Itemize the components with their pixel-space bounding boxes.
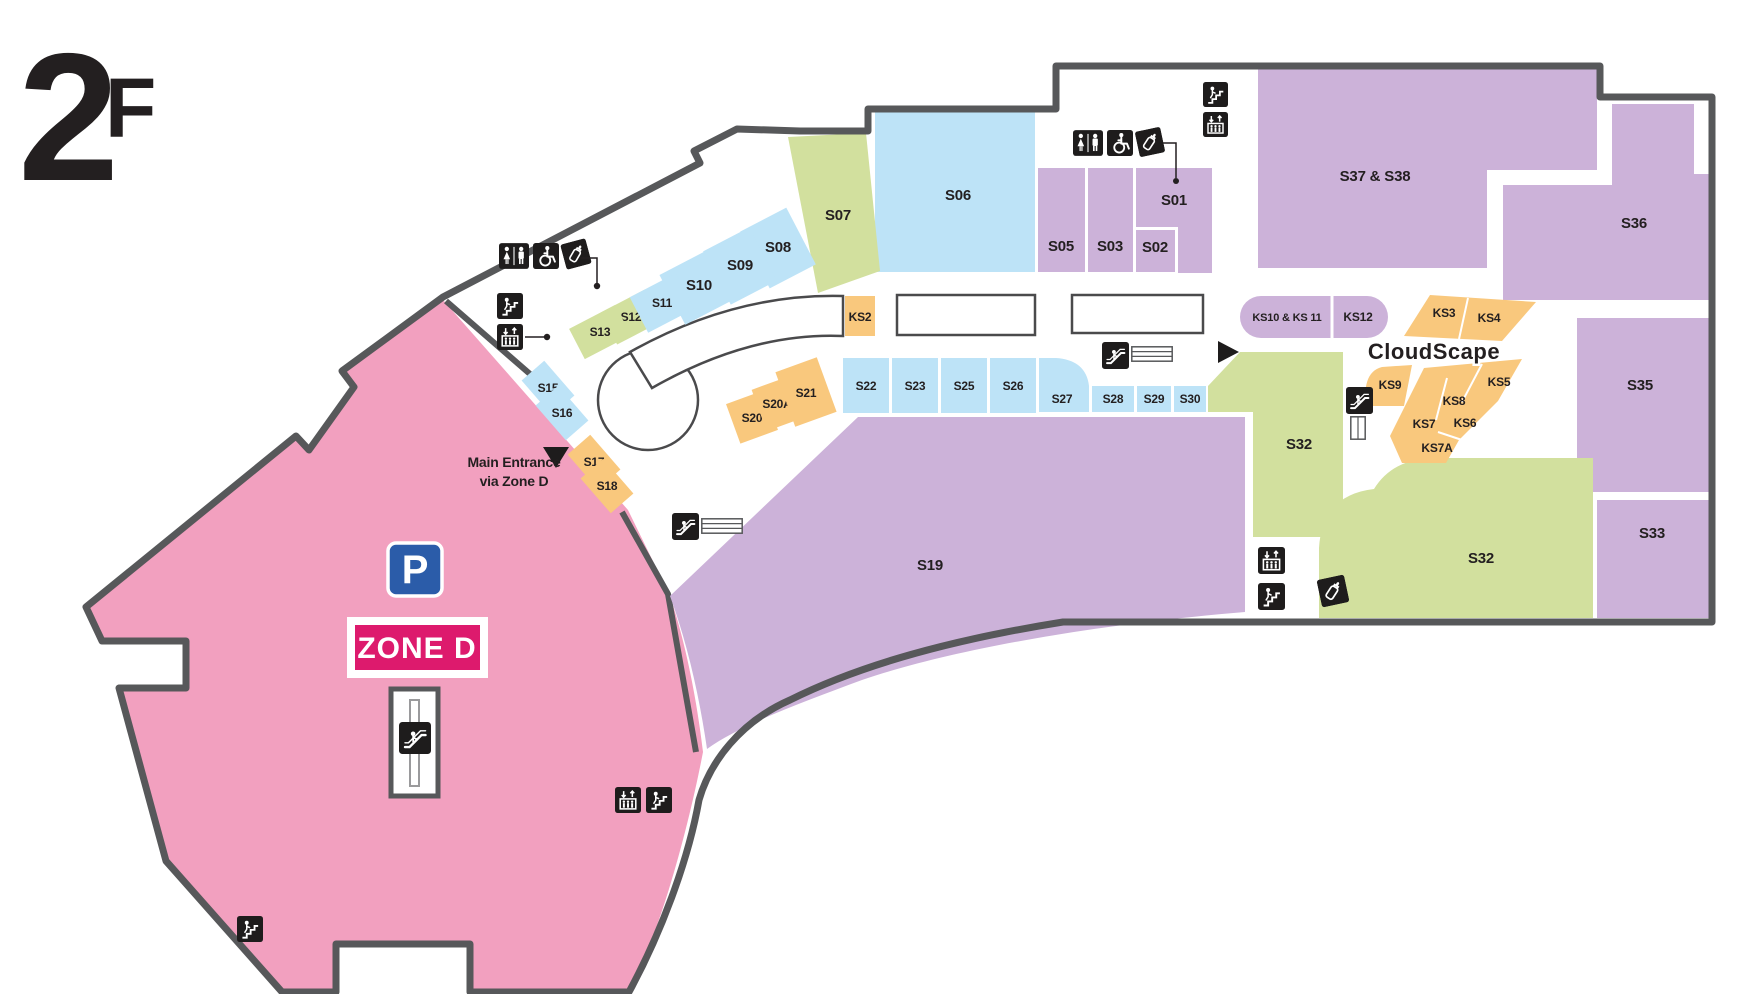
shop-label: S26	[1003, 379, 1024, 393]
elevator-icon	[615, 787, 641, 813]
stairs-icon	[497, 293, 523, 319]
shop-label: S35	[1627, 377, 1653, 394]
zone-d-label: ZONE D	[357, 632, 476, 665]
shop-label: S36	[1621, 215, 1647, 232]
shop-label: S03	[1097, 238, 1123, 255]
shop-label: S25	[954, 379, 975, 393]
shop-label: S02	[1142, 239, 1168, 256]
floorplan-page: S06 S05 S03 S01 S02 S37 & S38 S36 S35 S3…	[0, 0, 1764, 994]
location-dot	[544, 334, 550, 340]
zone-d-escalator-structure	[391, 689, 438, 796]
location-dot	[594, 283, 600, 289]
shop-label: S37 & S38	[1340, 168, 1411, 185]
shop-label: S22	[856, 379, 877, 393]
baby-care-icon	[1316, 574, 1349, 607]
parking-sign: P	[388, 543, 442, 596]
shop-S05: S05	[1038, 168, 1085, 272]
shop-label: S01	[1161, 192, 1187, 209]
mall-floorplan-2f: S06 S05 S03 S01 S02 S37 & S38 S36 S35 S3…	[0, 0, 1764, 994]
stairs-icon	[646, 787, 672, 813]
shop-label: KS9	[1379, 378, 1402, 392]
shop-label: S32	[1286, 436, 1312, 453]
corridor-void-1	[897, 295, 1035, 335]
escalator-run	[1132, 347, 1172, 361]
shop-S23: S23	[892, 358, 938, 413]
cloudscape-label: CloudScape	[1368, 339, 1500, 364]
shop-label: S16	[552, 406, 573, 420]
zone-d-badge: ZONE D	[347, 617, 488, 678]
shop-label: KS5	[1488, 375, 1511, 389]
shop-label: S33	[1639, 525, 1665, 542]
parking-letter: P	[402, 548, 428, 592]
restroom-icon	[1073, 130, 1103, 156]
shop-label: S28	[1103, 392, 1124, 406]
shop-S06: S06	[875, 112, 1035, 272]
shop-label: S19	[917, 557, 943, 574]
shop-label: S18	[597, 479, 618, 493]
shop-label: S20	[742, 411, 763, 425]
escalator-run	[702, 519, 742, 533]
shop-label: S09	[727, 257, 753, 274]
shop-label: S11	[652, 296, 673, 310]
elevator-icon	[497, 324, 523, 350]
escalator-icon	[672, 513, 699, 540]
shop-S28: S28	[1092, 386, 1134, 412]
shop-S33: S33	[1597, 500, 1712, 618]
shop-S26: S26	[990, 358, 1036, 413]
shop-label: KS8	[1443, 394, 1466, 408]
shop-label: S32	[1468, 550, 1494, 567]
escalator-icon	[1102, 342, 1129, 369]
svg-text:Main Entrance: Main Entrance	[467, 454, 561, 470]
floor-number: 2	[18, 15, 119, 219]
svg-text:via Zone D: via Zone D	[480, 473, 549, 489]
shop-label: KS3	[1433, 306, 1456, 320]
shop-label: S21	[796, 386, 817, 400]
stairs-icon	[1203, 82, 1228, 107]
shop-label: KS10 & KS 11	[1252, 312, 1321, 324]
shop-S25: S25	[941, 358, 987, 413]
location-dot	[1173, 178, 1179, 184]
shop-label: S30	[1180, 392, 1201, 406]
shop-S35: S35	[1577, 318, 1712, 492]
shop-label: S06	[945, 187, 971, 204]
shop-label: S13	[590, 325, 611, 339]
wheelchair-icon	[533, 243, 559, 269]
floor-letter: F	[105, 61, 156, 155]
shop-S30: S30	[1174, 386, 1206, 412]
elevator-icon	[1258, 547, 1285, 574]
escalator-run	[1351, 417, 1365, 439]
elevator-icon	[1203, 112, 1228, 137]
shop-label: KS12	[1343, 310, 1373, 324]
floor-title: 2 F	[18, 15, 156, 219]
escalator-icon	[399, 722, 431, 754]
escalator-icon	[1346, 387, 1373, 414]
corridor-void-2	[1072, 295, 1203, 333]
shop-S03: S03	[1088, 168, 1133, 272]
kiosk-KS10-KS11-KS12: KS10 & KS 11 KS12	[1240, 296, 1388, 338]
stairs-icon	[237, 916, 263, 942]
shop-label: KS7	[1413, 417, 1436, 431]
kiosk-KS2: KS2	[845, 296, 875, 336]
shop-label: KS7A	[1421, 441, 1453, 455]
baby-care-icon	[1135, 127, 1166, 158]
shop-label: S29	[1144, 392, 1165, 406]
shop-S02: S02	[1136, 230, 1175, 272]
shop-label: KS4	[1478, 311, 1501, 325]
shop-S29: S29	[1137, 386, 1171, 412]
wheelchair-icon	[1107, 130, 1133, 156]
shop-label: S08	[765, 239, 791, 256]
shop-label: S07	[825, 207, 851, 224]
shop-S22: S22	[843, 358, 889, 413]
stairs-icon	[1258, 583, 1285, 610]
shop-label: S23	[905, 379, 926, 393]
restroom-icon	[499, 243, 529, 269]
shop-label: S05	[1048, 238, 1074, 255]
shop-label: S27	[1052, 392, 1073, 406]
shop-label: KS2	[849, 310, 872, 324]
shop-label: KS6	[1454, 416, 1477, 430]
shop-label: S10	[686, 277, 712, 294]
